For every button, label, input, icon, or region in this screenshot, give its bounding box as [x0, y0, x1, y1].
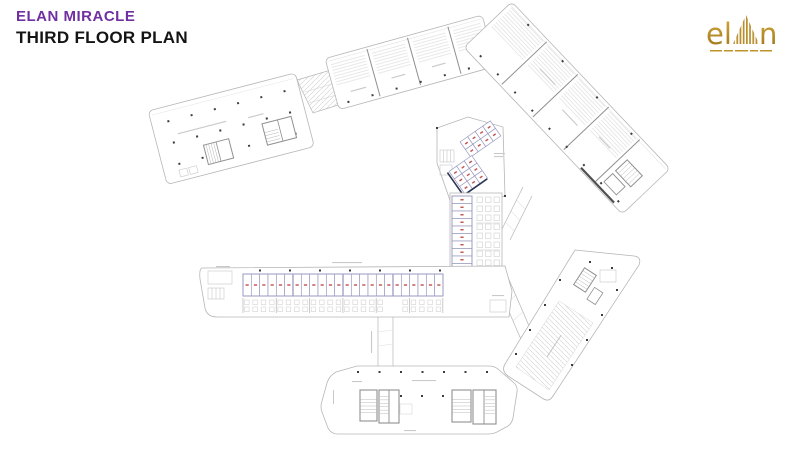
logo-prefix: el: [706, 17, 732, 51]
page-title: THIRD FLOOR PLAN: [16, 27, 188, 48]
foodcourt-units-stack: [450, 193, 502, 272]
floor-plan-drawing: [0, 0, 800, 450]
wing-south: [321, 366, 517, 434]
link-northeast: [501, 187, 532, 240]
elan-logo: el n: [698, 10, 788, 62]
logo-triangle-a-icon: [733, 15, 759, 44]
banquet-wing-north: [325, 15, 496, 110]
link-bridge-south: [371, 317, 393, 366]
left-wing: [148, 73, 314, 185]
logo-tagline: [710, 50, 772, 52]
logo-suffix: n: [759, 17, 777, 51]
food-court-strip: [200, 262, 512, 317]
wing-southeast: [504, 250, 640, 400]
slide: ELAN MIRACLE THIRD FLOOR PLAN el n: [0, 0, 800, 450]
brand-title: ELAN MIRACLE: [16, 8, 188, 27]
slide-header: ELAN MIRACLE THIRD FLOOR PLAN: [16, 8, 188, 48]
